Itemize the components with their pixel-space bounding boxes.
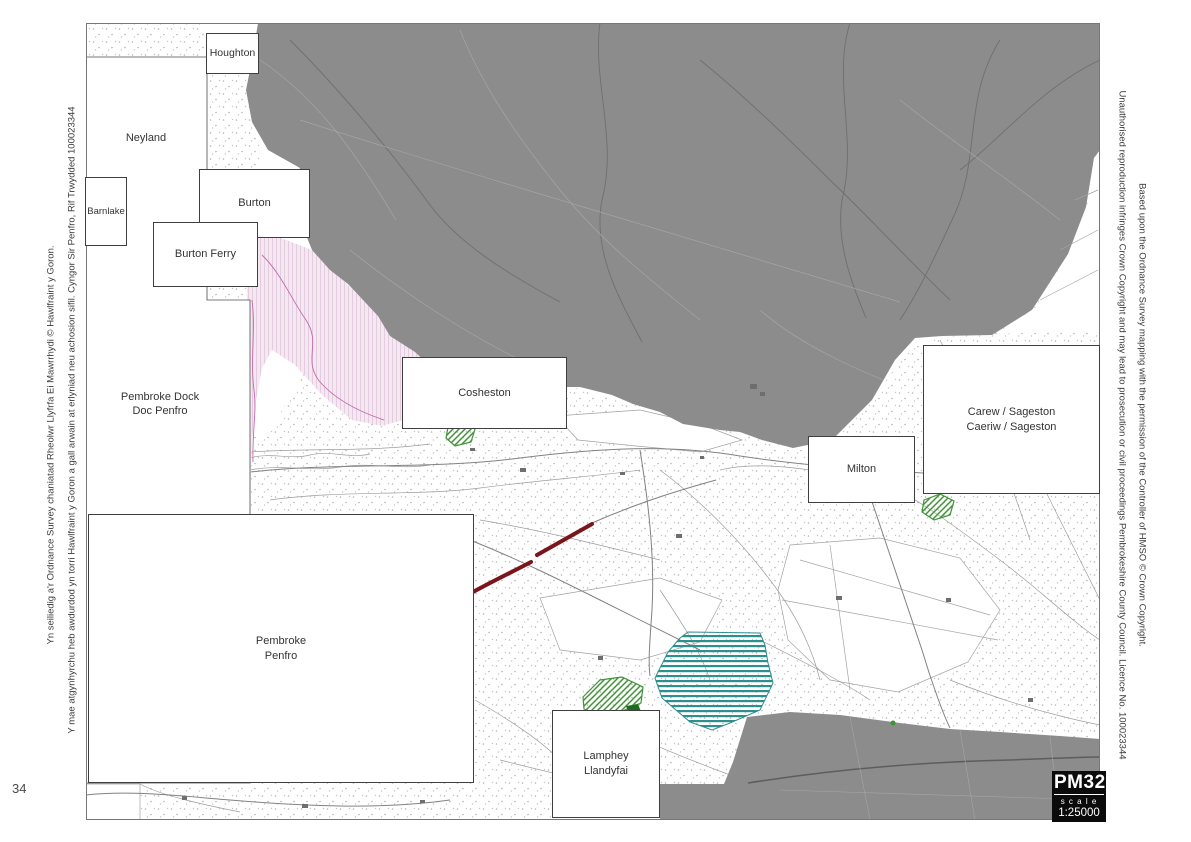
label-text: Barnlake (87, 204, 125, 219)
label-text: Llandyfai (584, 764, 628, 779)
settlement-label-neyland: Neyland (92, 127, 200, 149)
label-text: Doc Penfro (132, 404, 187, 418)
label-text: Carew / Sageston (968, 405, 1055, 420)
label-text: Pembroke (256, 634, 306, 649)
settlement-label-lamphey: Lamphey Llandyfai (552, 710, 660, 818)
settlement-label-houghton: Houghton (206, 33, 259, 74)
label-text: Penfro (265, 649, 297, 664)
settlement-label-burton-ferry: Burton Ferry (153, 222, 258, 287)
green-dot (891, 721, 896, 726)
settlement-label-carew-sageston: Carew / Sageston Caeriw / Sageston (923, 345, 1100, 494)
map-scale-label: s c a l e (1054, 797, 1104, 807)
copyright-text-english-outer: Based upon the Ordnance Survey mapping w… (1137, 183, 1148, 647)
settlement-label-barnlake: Barnlake (85, 177, 127, 246)
settlement-label-milton: Milton (808, 436, 915, 503)
settlement-label-pembroke-dock: Pembroke Dock Doc Penfro (95, 389, 225, 419)
copyright-text-english-inner: Unauthorised reproduction infringes Crow… (1117, 90, 1128, 759)
label-text: Burton Ferry (175, 247, 236, 262)
settlement-label-cosheston: Cosheston (402, 357, 567, 429)
map-ref-badge: PM32 s c a l e 1:25000 (1052, 771, 1106, 822)
document-page: Yn seiliedig a'r Ordnance Survey chaniat… (0, 0, 1191, 842)
label-text: Milton (847, 462, 876, 477)
map-scale-value: 1:25000 (1054, 807, 1104, 819)
copyright-text-welsh-outer: Yn seiliedig a'r Ordnance Survey chaniat… (46, 245, 57, 644)
copyright-text-welsh-inner: Y mae atgynhyrchu heb awdurdod yn torri … (67, 106, 78, 733)
map-ref-code: PM32 (1054, 773, 1104, 795)
label-text: Houghton (210, 46, 256, 61)
label-text: Pembroke Dock (121, 390, 199, 404)
label-text: Burton (238, 196, 270, 211)
label-text: Cosheston (458, 386, 511, 401)
label-text: Caeriw / Sageston (967, 420, 1057, 435)
page-number: 34 (12, 781, 26, 796)
label-text: Neyland (126, 131, 166, 145)
settlement-label-pembroke: Pembroke Penfro (88, 514, 474, 783)
label-text: Lamphey (583, 749, 628, 764)
